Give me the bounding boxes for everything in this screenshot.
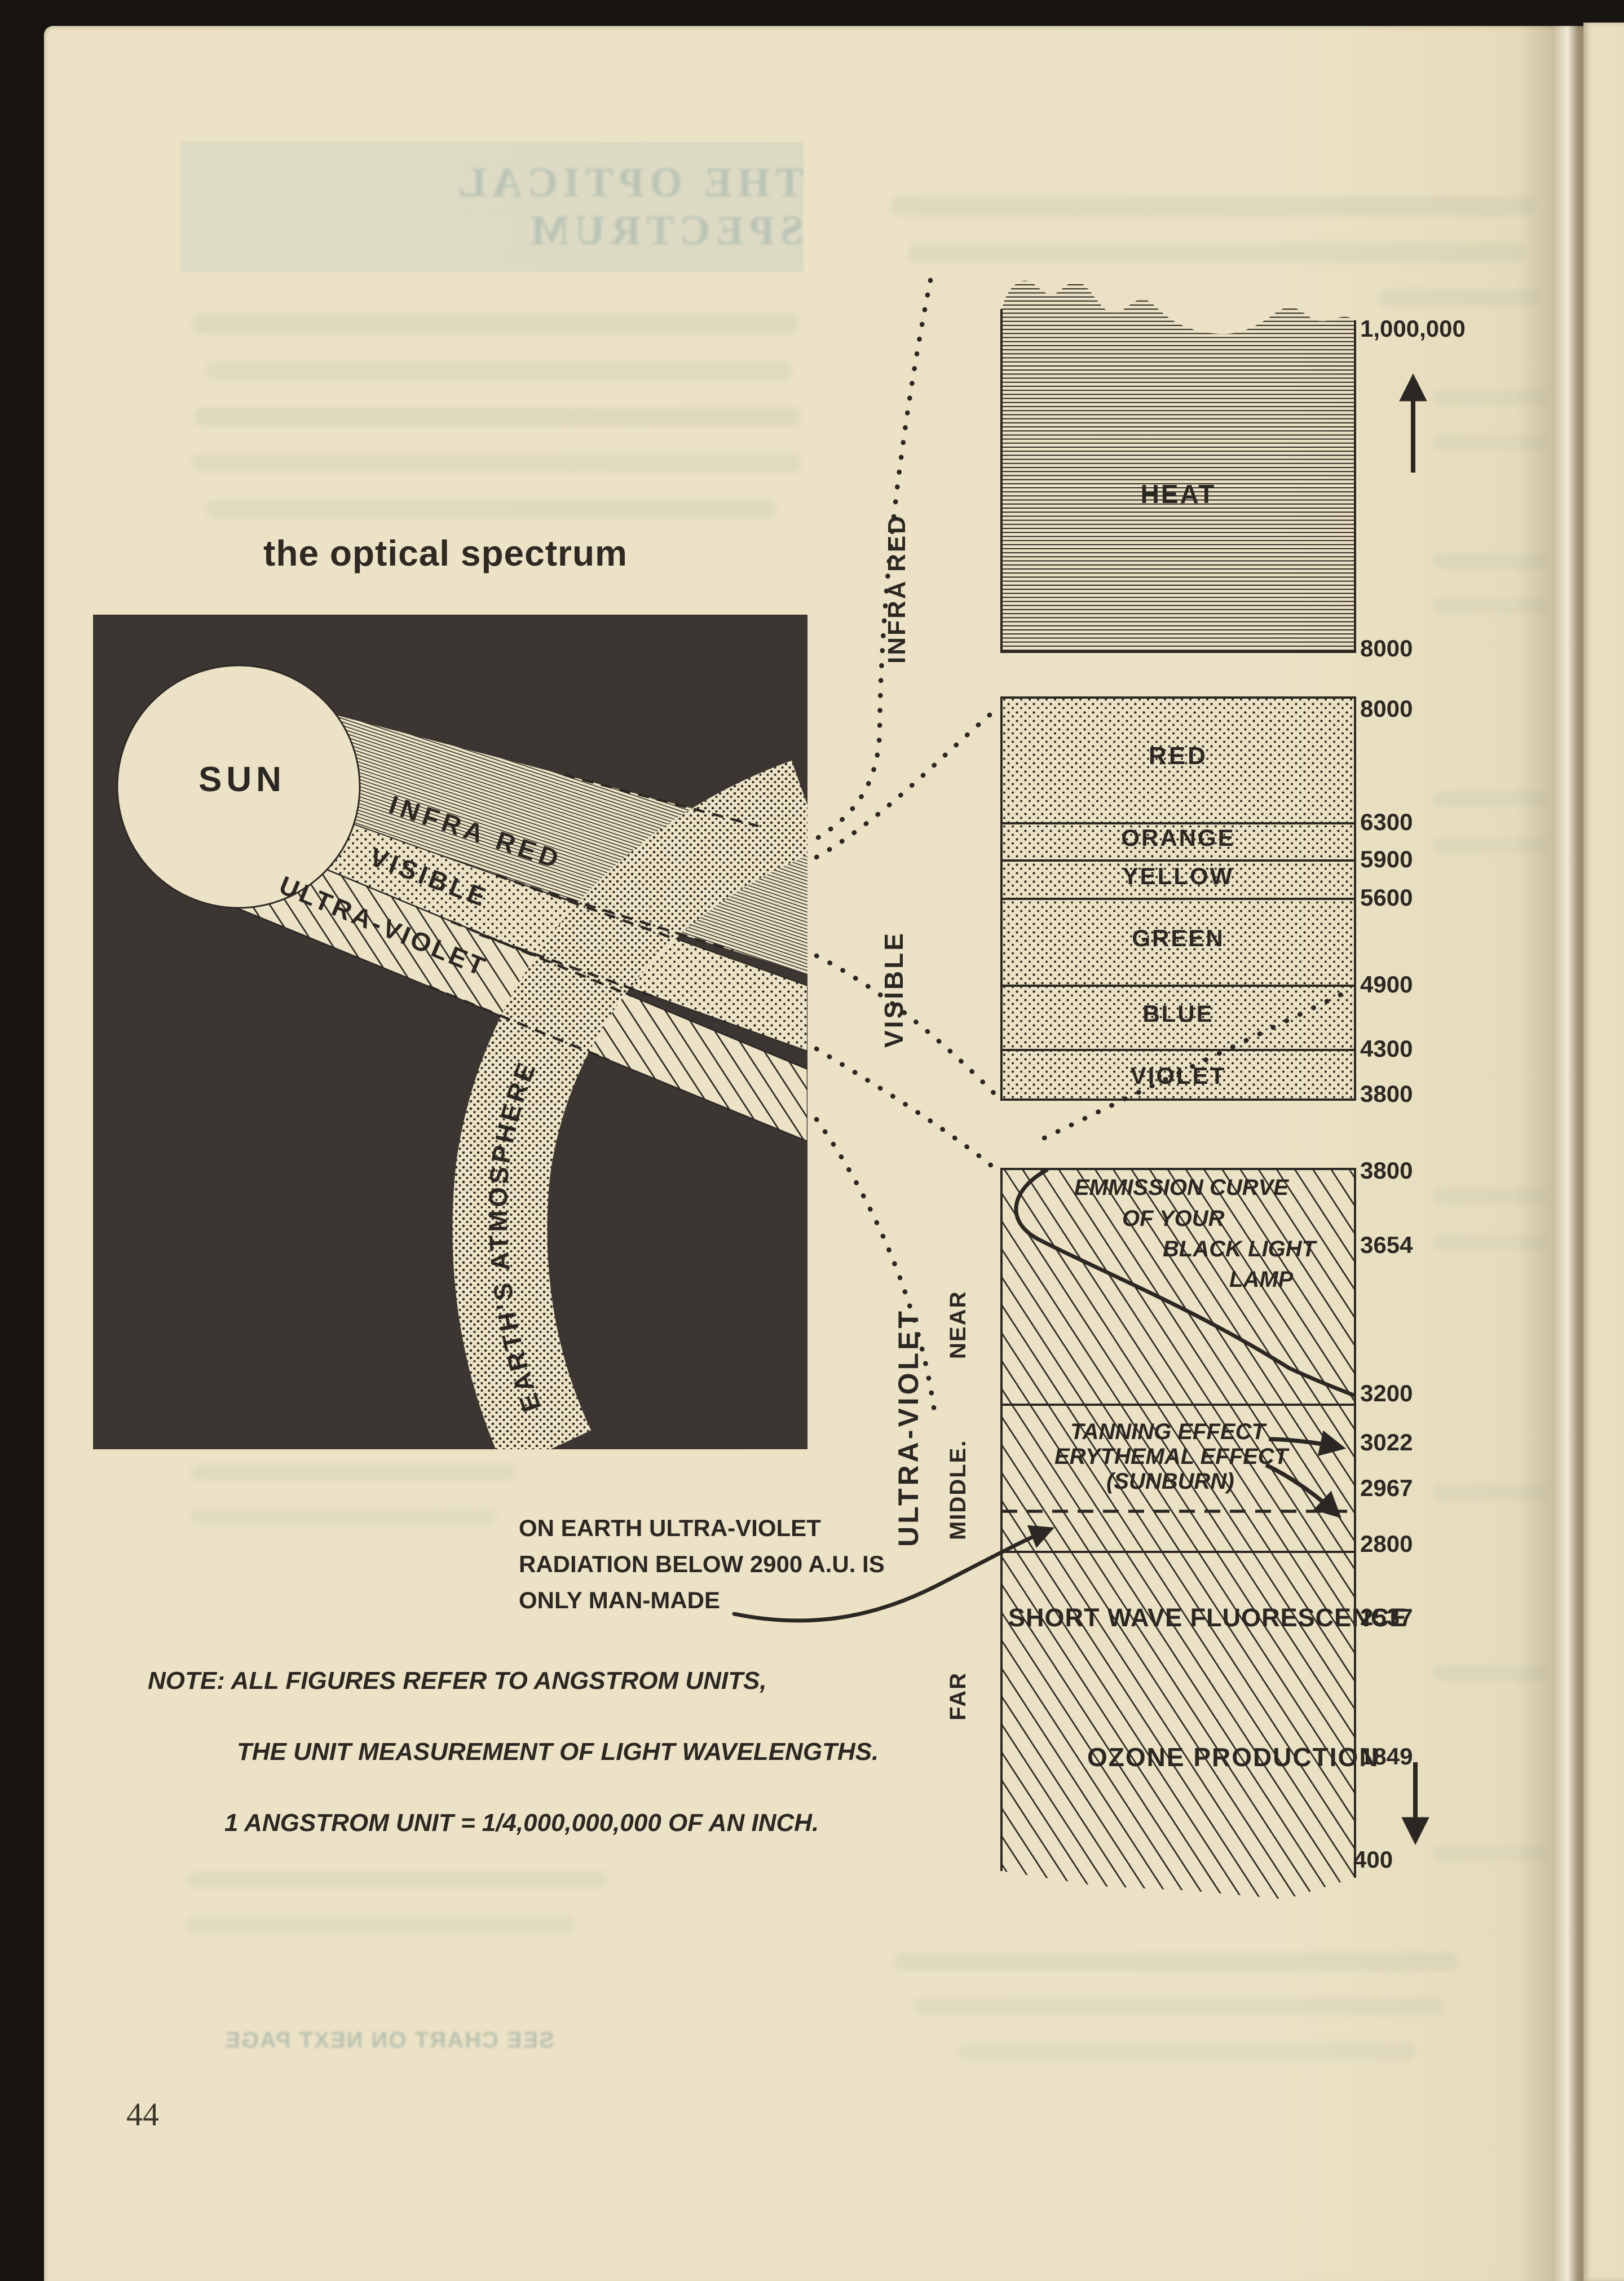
axis-visible-label: VISIBLE [879, 931, 909, 1048]
sunburn-label: (SUNBURN) [1106, 1470, 1234, 1493]
tick-2967: 2967 [1360, 1476, 1413, 1501]
tick-5600: 5600 [1360, 885, 1413, 910]
color-label-orange: ORANGE [1001, 826, 1355, 850]
color-label-blue: BLUE [1001, 1001, 1355, 1026]
tick-3200: 3200 [1360, 1381, 1413, 1406]
axis-middle-label: MIDDLE. [946, 1440, 971, 1540]
uv-note-line-1: ON EARTH ULTRA-VIOLET [519, 1516, 821, 1541]
facing-page-edge [1583, 23, 1624, 2281]
tick-8000-ir: 8000 [1360, 636, 1413, 661]
axis-ultra-violet-label: ULTRA-VIOLET [892, 1308, 925, 1547]
tick-3800-uv: 3800 [1360, 1158, 1413, 1183]
color-label-yellow: YELLOW [1001, 864, 1355, 889]
tick-3800-vis: 3800 [1360, 1082, 1413, 1106]
ozone-label: OZONE PRODUCTION [1087, 1744, 1379, 1771]
erythemal-label: ERYTHEMAL EFFECT [1054, 1445, 1288, 1468]
sun-label: SUN [198, 761, 286, 798]
tick-2800: 2800 [1360, 1532, 1413, 1556]
tick-6300: 6300 [1360, 810, 1413, 835]
tick-3654: 3654 [1360, 1233, 1413, 1258]
tick-5900: 5900 [1360, 847, 1413, 872]
tick-1849: 1849 [1360, 1744, 1413, 1769]
axis-far-label: FAR [946, 1672, 971, 1720]
axis-infra-red-label: INFRA RED [883, 514, 911, 664]
angstrom-note-line-1: NOTE: ALL FIGURES REFER TO ANGSTROM UNIT… [148, 1668, 767, 1694]
tick-3022: 3022 [1360, 1430, 1413, 1455]
page-gutter-crease [1517, 26, 1583, 2281]
tick-4300: 4300 [1360, 1036, 1413, 1061]
heat-label: HEAT [1001, 480, 1355, 508]
bleedthrough-line [913, 1997, 1444, 2015]
angstrom-note-line-3: 1 ANGSTROM UNIT = 1/4,000,000,000 OF AN … [224, 1810, 819, 1836]
infrared-block [1001, 281, 1355, 652]
emission-line-3: BLACK LIGHT [1163, 1237, 1316, 1261]
angstrom-note-line-2: THE UNIT MEASUREMENT OF LIGHT WAVELENGTH… [237, 1739, 879, 1765]
uv-note-line-2: RADIATION BELOW 2900 A.U. IS [519, 1552, 885, 1577]
tick-4900: 4900 [1360, 972, 1413, 997]
tanning-label: TANNING EFFECT [1070, 1420, 1265, 1444]
emission-line-2: OF YOUR [1122, 1207, 1225, 1230]
tick-8000-vis: 8000 [1360, 696, 1413, 721]
uv-note-line-3: ONLY MAN-MADE [519, 1588, 720, 1613]
tick-1000000: 1,000,000 [1360, 316, 1466, 341]
ultraviolet-block [1001, 1169, 1355, 1899]
color-label-red: RED [1001, 743, 1355, 769]
short-wave-label: SHORT WAVE FLUORESCENCE [1008, 1604, 1407, 1631]
tick-2537: 2537 [1360, 1605, 1413, 1630]
bleedthrough-footer-text: SEE CHART ON NEXT PAGE [203, 2028, 575, 2053]
bleedthrough-line [894, 1952, 1458, 1971]
axis-near-label: NEAR [946, 1291, 971, 1359]
scanned-book-page: THE OPTICAL SPECTRUM the optical spectru… [0, 0, 1624, 2281]
bleedthrough-line [891, 196, 1537, 217]
page-number: 44 [126, 2095, 159, 2133]
color-label-green: GREEN [1001, 926, 1355, 951]
bleedthrough-line [959, 2042, 1415, 2061]
emission-line-4: LAMP [1229, 1268, 1293, 1291]
emission-line-1: EMMISSION CURVE [1074, 1176, 1288, 1199]
color-label-violet: VIOLET [1001, 1064, 1355, 1088]
tick-400: 400 [1353, 1847, 1393, 1872]
